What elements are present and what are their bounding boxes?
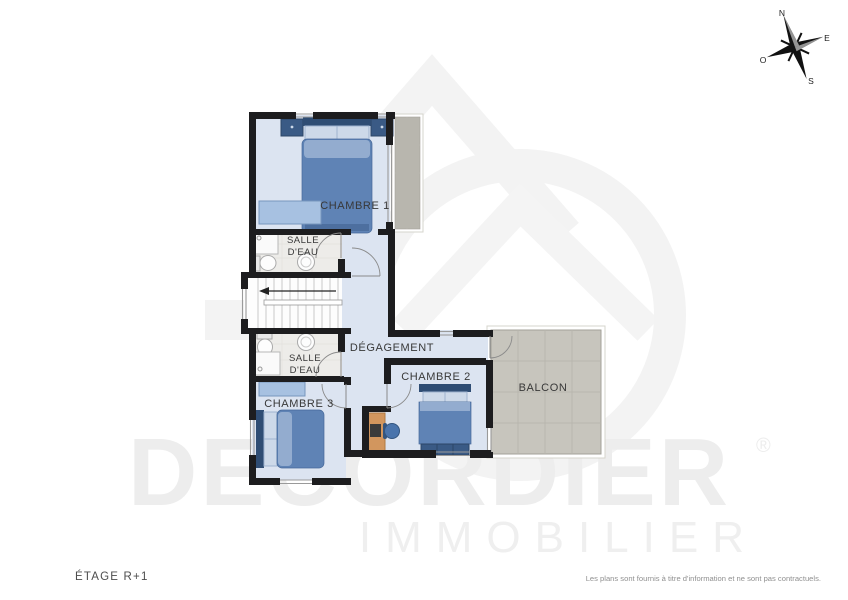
compass-south-label: S	[808, 76, 814, 86]
label-chambre2: CHAMBRE 2	[401, 371, 471, 383]
floor-title: ÉTAGE R+1	[75, 570, 149, 583]
label-salle-eau1-l2: D'EAU	[288, 247, 319, 258]
floor-plan-page: DECORDIER ® IMMOBILIER	[0, 0, 848, 600]
stair-handrail	[264, 300, 342, 305]
floor-plan-drawing: DECORDIER ® IMMOBILIER	[0, 0, 848, 600]
disclaimer-text: Les plans sont fournis à titre d'informa…	[586, 574, 821, 583]
label-salle-eau2-l2: D'EAU	[290, 365, 321, 376]
compass-north-label: N	[779, 8, 785, 18]
compass-west-label: O	[760, 55, 767, 65]
compass-east-label: E	[824, 33, 830, 43]
watermark-registered-icon: ®	[756, 435, 771, 457]
watermark-subtitle: IMMOBILIER	[359, 513, 758, 562]
compass-rose-icon: N E S O	[755, 5, 835, 89]
label-salle-eau2-l1: SALLE	[289, 353, 321, 364]
chair-icon	[383, 423, 400, 439]
bench-chambre1-icon	[259, 201, 321, 224]
label-balcon: BALCON	[519, 382, 568, 394]
label-degagement: DÉGAGEMENT	[350, 341, 434, 354]
terrace-strip	[395, 117, 420, 229]
shower-icon	[253, 352, 280, 375]
label-chambre3: CHAMBRE 3	[264, 398, 334, 410]
bed-chambre2-icon	[419, 384, 471, 455]
footer: ÉTAGE R+1 Les plans sont fournis à titre…	[75, 570, 821, 583]
label-chambre1: CHAMBRE 1	[320, 200, 390, 212]
shower-icon	[253, 232, 278, 254]
desk-icon	[368, 413, 385, 452]
label-salle-eau1-l1: SALLE	[287, 235, 319, 246]
